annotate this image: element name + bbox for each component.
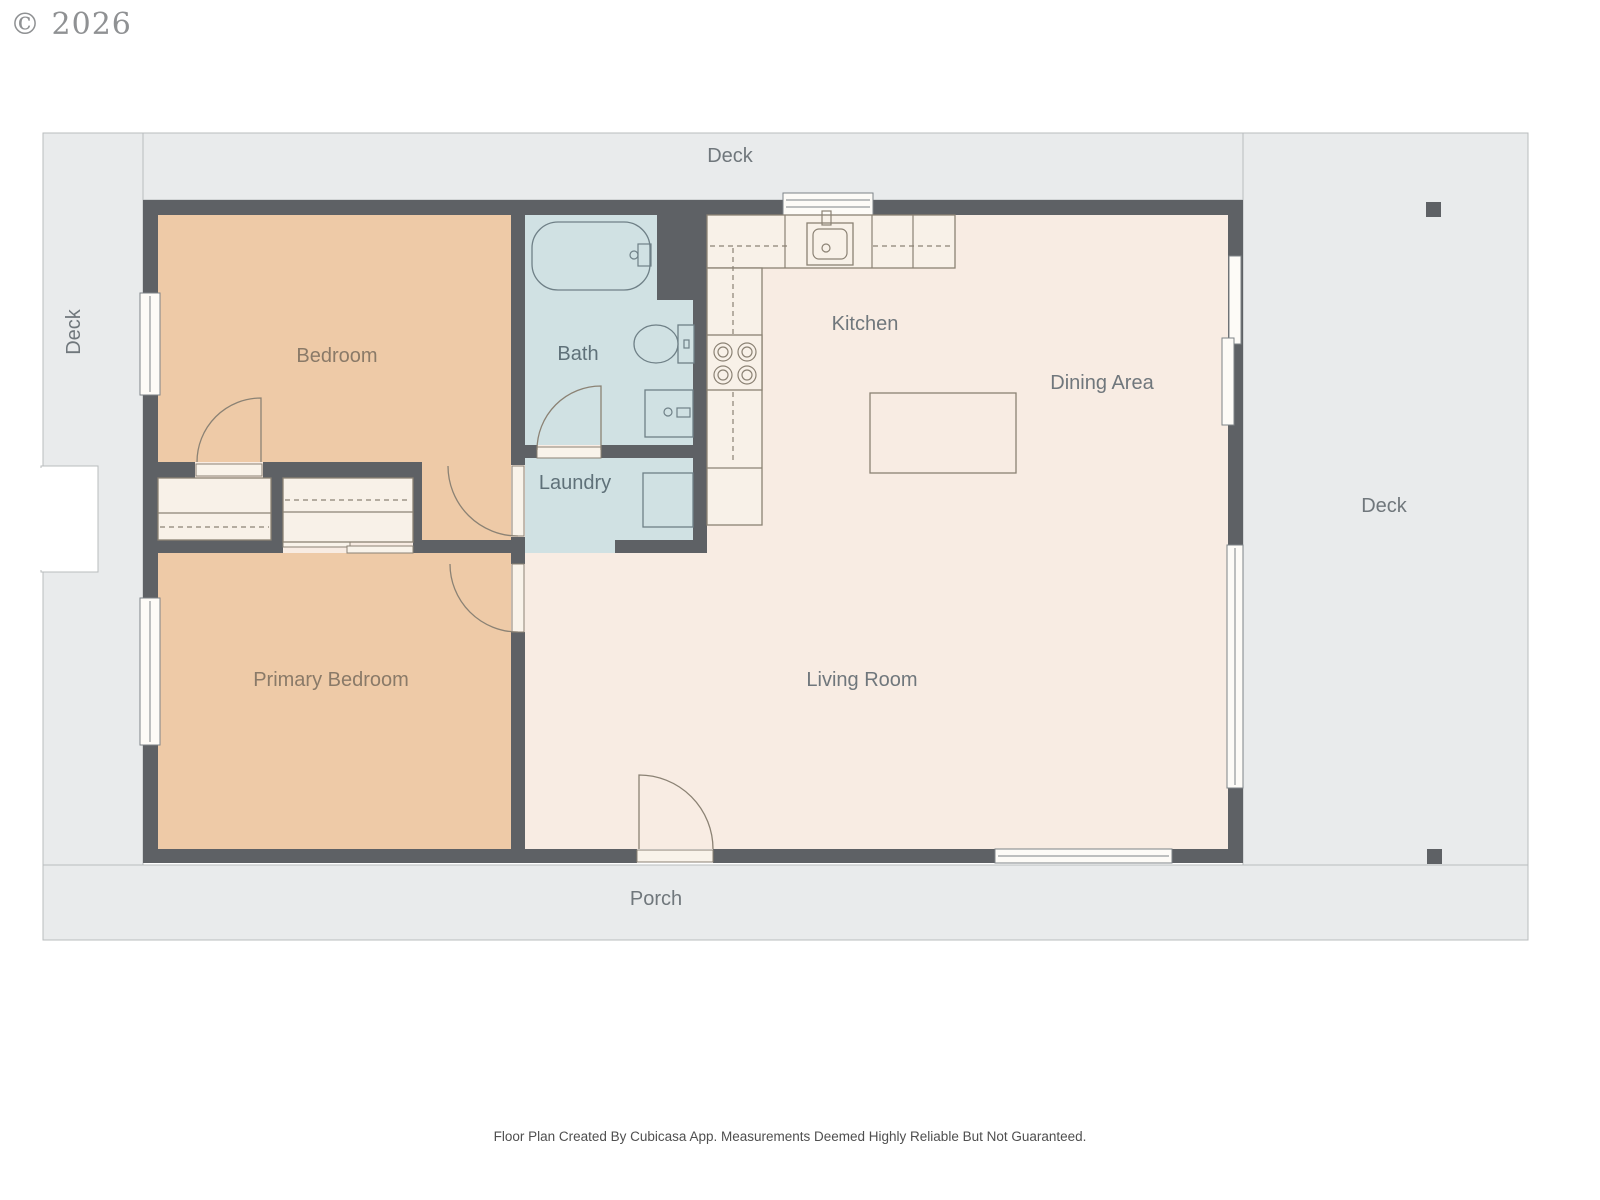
deck-top-area — [143, 133, 1243, 200]
deck-right-label: Deck — [1361, 495, 1408, 517]
bathtub — [532, 222, 651, 290]
floor-plan-canvas: Deck Deck Deck Porch Bedroom Primary Bed… — [0, 0, 1600, 1200]
closet-right — [283, 478, 413, 542]
living-room-window — [995, 849, 1172, 863]
washer — [643, 473, 693, 527]
kitchen-window — [783, 193, 873, 215]
living-room-label: Living Room — [806, 669, 917, 691]
copyright-text: © 2026 — [10, 7, 132, 42]
bedroom-floor — [158, 215, 511, 462]
bedroom-label: Bedroom — [296, 345, 377, 367]
porch-area — [43, 865, 1528, 940]
kitchen-island — [870, 393, 1016, 473]
laundry-label: Laundry — [539, 472, 611, 494]
deck-top-label: Deck — [707, 145, 754, 167]
deck-post-bottom — [1427, 849, 1442, 864]
toilet — [634, 325, 694, 363]
bath-label: Bath — [557, 343, 598, 365]
deck-left-notch — [41, 466, 98, 572]
bathroom-sink — [645, 390, 693, 437]
bedroom-window — [140, 293, 160, 395]
deck-post-top — [1426, 202, 1441, 217]
porch-label: Porch — [630, 888, 682, 910]
primary-bedroom-window — [140, 598, 160, 745]
closet-left — [158, 478, 271, 540]
floor-plan-page: Deck Deck Deck Porch Bedroom Primary Bed… — [0, 0, 1600, 1200]
dining-window — [1227, 545, 1243, 788]
stove — [707, 335, 762, 390]
kitchen-label: Kitchen — [832, 313, 899, 335]
dining-area-label: Dining Area — [1050, 372, 1154, 394]
deck-left-label: Deck — [63, 308, 85, 355]
footer-disclaimer: Floor Plan Created By Cubicasa App. Meas… — [494, 1129, 1087, 1144]
deck-left-notch-cover — [38, 468, 43, 570]
bedroom-nook-floor — [422, 462, 511, 553]
primary-bedroom-label: Primary Bedroom — [253, 669, 409, 691]
